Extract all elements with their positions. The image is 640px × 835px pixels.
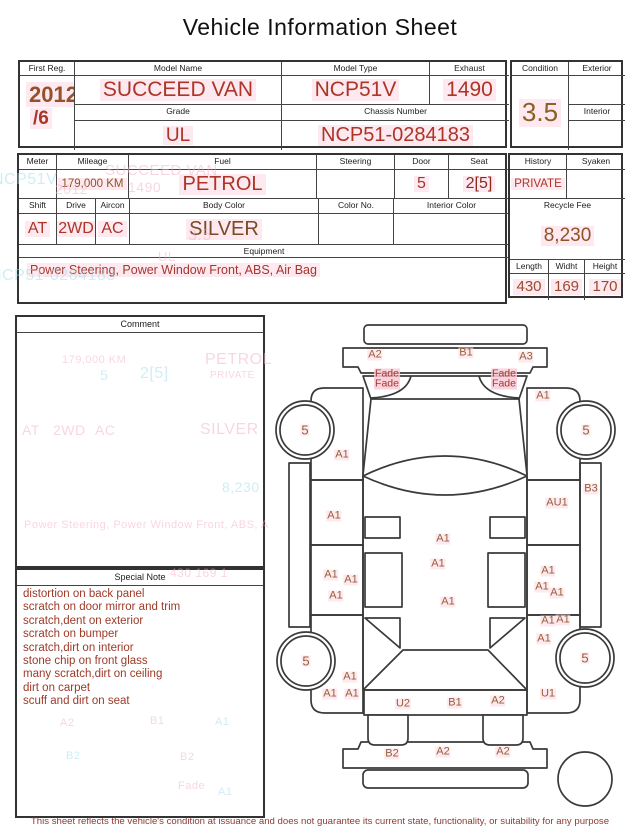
left-sill: [289, 463, 310, 627]
left-front-window: [365, 517, 400, 538]
note-line: scratch on bumper: [23, 628, 261, 641]
front-left-wheel: [276, 401, 334, 459]
note-line: scuff and dirt on seat: [23, 695, 261, 708]
condition-table: Condition 3.5 Exterior Interior: [510, 60, 623, 148]
interior-color-value: [394, 214, 509, 245]
headlight-left: [371, 376, 411, 398]
rear-bumper: [343, 742, 547, 768]
car-damage-diagram: [270, 310, 640, 820]
note-line: distortion on back panel: [23, 588, 261, 601]
right-front-window: [490, 517, 525, 538]
rear-right-wheel: [556, 629, 614, 687]
seat-label: Seat: [449, 155, 509, 170]
note-line: scratch,dent on exterior: [23, 615, 261, 628]
height-value: 170: [585, 274, 625, 300]
first-reg-month: /6: [30, 108, 52, 130]
exterior-value: [569, 76, 625, 105]
fuel-label: Fuel: [129, 155, 317, 170]
right-tail-tab: [483, 715, 523, 745]
first-reg-year: 2012: [26, 82, 75, 108]
rear-left-wheel: [277, 632, 335, 690]
widht-label: Widht: [549, 260, 585, 274]
steering-label: Steering: [317, 155, 395, 170]
first-reg-value: 2012 /6: [20, 76, 75, 150]
color-no-label: Color No.: [319, 199, 394, 214]
condition-value: 3.5: [512, 76, 569, 150]
disclaimer-text: This sheet reflects the vehicle's condit…: [0, 816, 640, 827]
a-pillars: [363, 399, 527, 475]
aircon-value: AC: [96, 214, 130, 245]
left-rear-window: [365, 553, 402, 607]
first-reg-label: First Reg.: [20, 62, 75, 76]
mileage-label: Mileage: [57, 155, 129, 170]
drive-value: 2WD: [57, 214, 96, 245]
meter-label: Meter: [19, 155, 57, 170]
steering-value: [317, 170, 395, 199]
chassis-number-value: NCP51-0284183: [282, 121, 509, 150]
model-name-label: Model Name: [75, 62, 282, 76]
widht-value: 169: [549, 274, 585, 300]
left-rear-door: [311, 545, 363, 615]
left-tail-tab: [368, 715, 408, 745]
body-color-value: SILVER: [130, 214, 319, 245]
equipment-label: Equipment: [19, 245, 509, 258]
length-label: Length: [510, 260, 549, 274]
shift-value: AT: [19, 214, 57, 245]
right-rear-door: [527, 545, 580, 615]
left-front-door: [311, 480, 363, 545]
seat-value: 2[5]: [449, 170, 509, 199]
recycle-fee-value: 8,230: [510, 213, 625, 260]
meter-value: [19, 170, 57, 199]
syaken-label: Syaken: [567, 155, 625, 170]
special-note-lines: distortion on back panelscratch on door …: [23, 588, 261, 709]
syaken-value: [567, 170, 625, 199]
mileage-value: 179,000 KM: [57, 170, 129, 199]
exhaust-value: 1490: [430, 76, 509, 105]
left-quarter-window: [365, 618, 400, 648]
interior-value: [569, 121, 625, 150]
exterior-label: Exterior: [569, 62, 625, 76]
chassis-number-label: Chassis Number: [282, 105, 509, 121]
comment-header: Comment: [17, 317, 263, 333]
rear-bottom-strip: [363, 770, 528, 788]
right-quarter-window: [490, 618, 525, 648]
exhaust-label: Exhaust: [430, 62, 509, 76]
shift-label: Shift: [19, 199, 57, 214]
color-no-value: [319, 214, 394, 245]
model-type-label: Model Type: [282, 62, 430, 76]
spec-table: Meter Mileage Fuel Steering Door Seat 17…: [17, 153, 507, 304]
vehicle-identity-table: First Reg. 2012 /6 Model Name SUCCEED VA…: [18, 60, 507, 148]
windshield: [363, 456, 527, 495]
right-sill: [580, 463, 601, 627]
right-front-door: [527, 480, 580, 545]
history-label: History: [510, 155, 567, 170]
front-right-wheel: [557, 401, 615, 459]
note-line: scratch,dirt on interior: [23, 642, 261, 655]
note-line: dirt on carpet: [23, 682, 261, 695]
grade-label: Grade: [75, 105, 282, 121]
equipment-value: Power Steering, Power Window Front, ABS,…: [19, 258, 509, 306]
history-fee-table: History Syaken PRIVATE Recycle Fee 8,230…: [508, 153, 623, 298]
interior-color-label: Interior Color: [394, 199, 509, 214]
drive-label: Drive: [57, 199, 96, 214]
model-name-value: SUCCEED VAN: [75, 76, 282, 105]
headlight-right: [479, 376, 519, 398]
special-note-header: Special Note: [17, 570, 263, 586]
fuel-value: PETROL: [129, 170, 317, 199]
door-value: 5: [395, 170, 449, 199]
special-note-box: Special Note distortion on back panelscr…: [15, 568, 265, 818]
length-value: 430: [510, 274, 549, 300]
rear-window: [363, 650, 527, 690]
height-label: Height: [585, 260, 625, 274]
note-line: scratch on door mirror and trim: [23, 601, 261, 614]
body-color-label: Body Color: [130, 199, 319, 214]
front-bumper: [343, 348, 547, 373]
roof-rails: [363, 476, 527, 690]
right-rear-window: [488, 553, 525, 607]
model-type-value: NCP51V: [282, 76, 430, 105]
condition-label: Condition: [512, 62, 569, 76]
note-line: stone chip on front glass: [23, 655, 261, 668]
recycle-fee-label: Recycle Fee: [510, 199, 625, 213]
note-line: many scratch,dirt on ceiling: [23, 668, 261, 681]
history-value: PRIVATE: [510, 170, 567, 199]
front-top-strip: [364, 325, 527, 344]
door-label: Door: [395, 155, 449, 170]
comment-box: Comment: [15, 315, 265, 568]
page-title: Vehicle Information Sheet: [0, 14, 640, 41]
interior-label: Interior: [569, 105, 625, 121]
grade-value: UL: [75, 121, 282, 150]
rear-hatch: [364, 690, 527, 715]
spare-wheel: [558, 752, 612, 806]
aircon-label: Aircon: [96, 199, 130, 214]
